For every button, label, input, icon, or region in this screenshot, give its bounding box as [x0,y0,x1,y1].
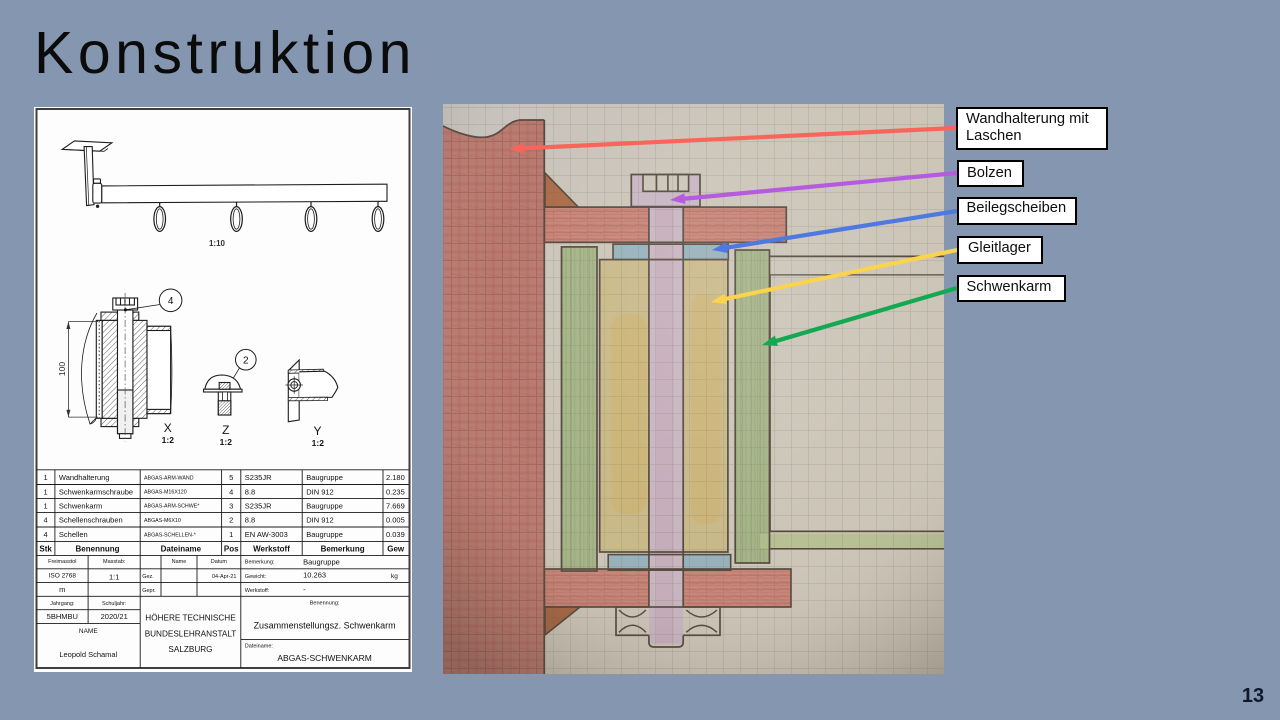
svg-text:-: - [303,585,306,594]
svg-text:0.039: 0.039 [386,530,405,539]
svg-text:Wandhalterung: Wandhalterung [59,473,110,482]
svg-text:Bemerkung:: Bemerkung: [245,560,275,566]
svg-text:5: 5 [229,473,233,482]
svg-text:ISO 2768: ISO 2768 [49,573,77,580]
svg-text:Leopold Schamal: Leopold Schamal [59,650,117,659]
svg-text:BUNDESLEHRANSTALT: BUNDESLEHRANSTALT [145,630,237,639]
svg-text:Name: Name [172,559,187,565]
svg-text:04-Apr-21: 04-Apr-21 [212,574,236,580]
svg-text:ABGAS-SCHELLEN-*: ABGAS-SCHELLEN-* [144,532,196,538]
svg-text:2: 2 [229,516,233,525]
svg-text:Z: Z [222,423,229,437]
svg-text:Baugruppe: Baugruppe [306,530,343,539]
svg-text:Y: Y [313,424,321,438]
svg-text:ABGAS-M16X120: ABGAS-M16X120 [144,490,187,496]
svg-text:Dateiname: Dateiname [161,545,202,554]
svg-text:Schellen: Schellen [59,530,88,539]
svg-text:7.669: 7.669 [386,501,405,510]
svg-text:10.263: 10.263 [303,571,326,580]
svg-text:Benennung:: Benennung: [310,601,340,607]
svg-text:5BHMBU: 5BHMBU [47,612,78,621]
svg-text:Baugruppe: Baugruppe [303,558,340,567]
svg-text:2020/21: 2020/21 [101,612,128,621]
svg-text:Masstab:: Masstab: [103,559,126,565]
svg-text:S235JR: S235JR [245,501,272,510]
svg-text:1:2: 1:2 [162,435,175,445]
svg-text:Werkstoff:: Werkstoff: [245,588,270,594]
svg-text:ABGAS-SCHWENKARM: ABGAS-SCHWENKARM [277,653,371,663]
svg-text:1:2: 1:2 [220,437,233,447]
svg-text:ABGAS-ARM-WAND: ABGAS-ARM-WAND [144,475,194,481]
svg-text:Schwenkarmschraube: Schwenkarmschraube [59,487,133,496]
svg-text:1:10: 1:10 [209,239,226,248]
svg-text:SALZBURG: SALZBURG [168,645,212,654]
svg-text:1: 1 [229,530,233,539]
svg-text:DIN 912: DIN 912 [306,487,334,496]
svg-text:3: 3 [229,501,233,510]
svg-text:4: 4 [44,516,48,525]
svg-text:0.235: 0.235 [386,487,405,496]
svg-text:1: 1 [44,473,48,482]
svg-text:8.8: 8.8 [245,487,255,496]
svg-text:kg: kg [391,573,398,580]
svg-text:Jahrgang:: Jahrgang: [50,601,75,607]
svg-text:0.005: 0.005 [386,516,405,525]
svg-text:Schellenschrauben: Schellenschrauben [59,516,123,525]
svg-text:ABGAS-ARM-SCHWE*: ABGAS-ARM-SCHWE* [144,504,199,510]
svg-text:Zusammenstellungsz. Schwenkarm: Zusammenstellungsz. Schwenkarm [254,621,396,631]
svg-text:Gew: Gew [387,545,405,554]
svg-text:HÖHERE TECHNISCHE: HÖHERE TECHNISCHE [145,613,236,623]
svg-text:Dateiname:: Dateiname: [245,644,274,650]
svg-text:Schuljahr:: Schuljahr: [102,601,127,607]
svg-text:X: X [164,421,172,435]
svg-text:ABGAS-M6X10: ABGAS-M6X10 [144,518,181,524]
svg-text:100: 100 [57,362,67,376]
svg-text:Baugruppe: Baugruppe [306,473,343,482]
svg-text:Gewicht:: Gewicht: [245,574,267,580]
svg-text:4: 4 [229,487,233,496]
svg-text:Schwenkarm: Schwenkarm [59,501,102,510]
svg-text:Baugruppe: Baugruppe [306,501,343,510]
svg-text:1:1: 1:1 [109,573,119,582]
svg-text:Pos: Pos [224,545,239,554]
svg-text:2: 2 [243,355,249,366]
svg-text:Gepr.: Gepr. [142,588,156,594]
svg-text:1: 1 [44,501,48,510]
svg-text:1: 1 [44,487,48,496]
svg-text:4: 4 [44,530,48,539]
svg-text:NAME: NAME [79,628,98,635]
svg-text:m: m [59,585,65,594]
svg-text:Benennung: Benennung [76,545,120,554]
svg-text:EN AW-3003: EN AW-3003 [245,530,288,539]
svg-text:Freimasstol: Freimasstol [48,559,76,565]
svg-text:Stk: Stk [39,545,52,554]
svg-text:4: 4 [168,296,174,307]
svg-text:1:2: 1:2 [312,438,325,448]
svg-text:Gez.: Gez. [142,574,154,580]
svg-text:Werkstoff: Werkstoff [253,545,290,554]
svg-text:8.8: 8.8 [245,516,255,525]
svg-text:S235JR: S235JR [245,473,272,482]
svg-text:Datum: Datum [211,559,228,565]
svg-text:2.180: 2.180 [386,473,405,482]
svg-text:DIN 912: DIN 912 [306,516,334,525]
svg-text:Bemerkung: Bemerkung [321,545,365,554]
